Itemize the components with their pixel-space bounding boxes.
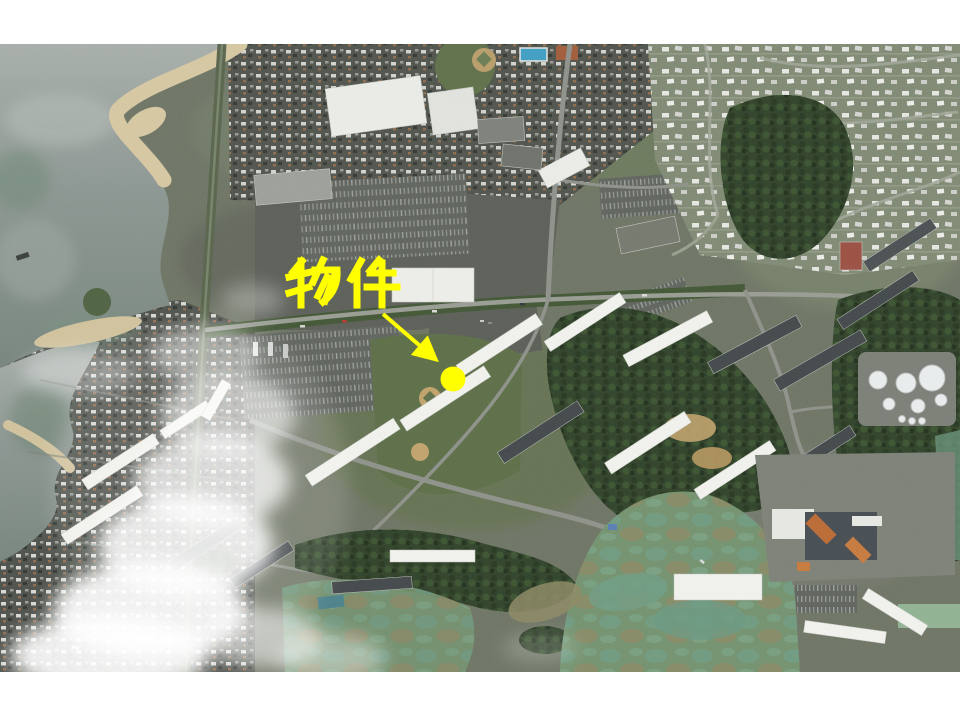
property-marker bbox=[441, 367, 466, 392]
presentation-slide: 物件 bbox=[0, 0, 960, 720]
aerial-photo bbox=[0, 36, 960, 695]
satellite-map: 物件 bbox=[0, 0, 960, 720]
